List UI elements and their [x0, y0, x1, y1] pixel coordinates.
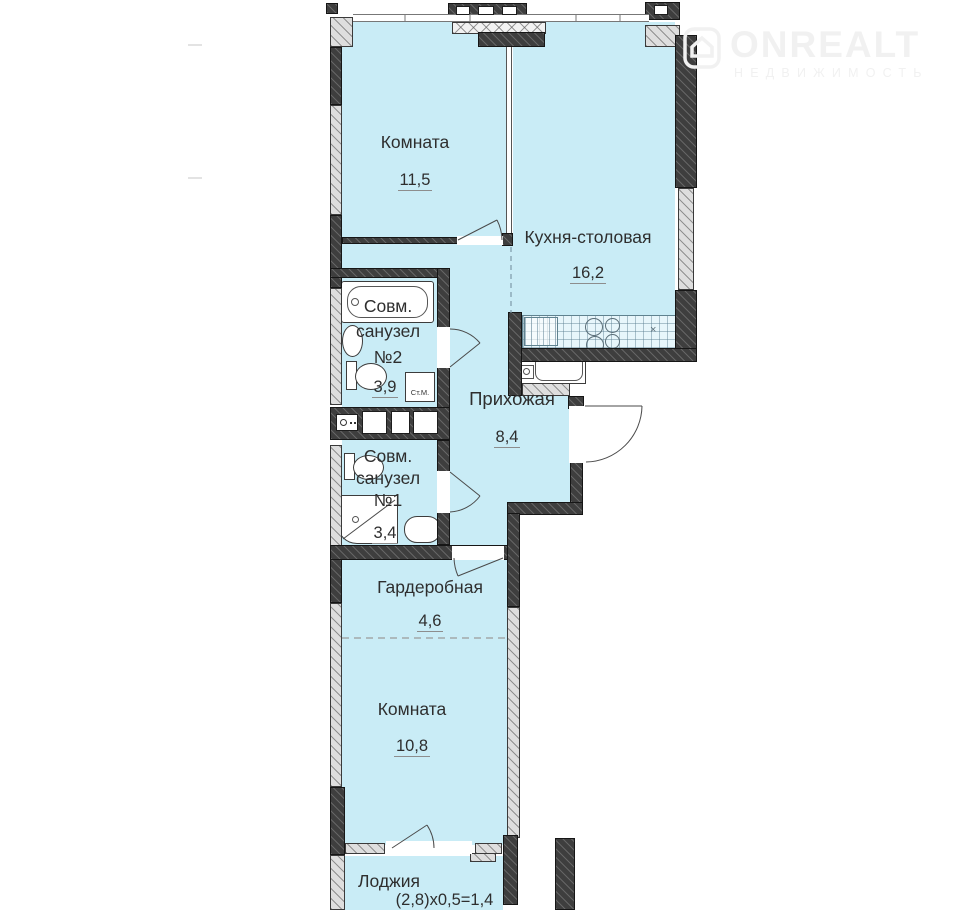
bath2-area: 3,9: [350, 377, 420, 396]
door-arc: [450, 329, 480, 343]
bath1-area: 3,4: [350, 523, 420, 542]
bath2-label-line3: №2: [336, 348, 440, 367]
bath2-label-line1: Совм.: [336, 297, 440, 316]
room1-label: Комната: [330, 133, 500, 152]
hall-area: 8,4: [472, 427, 542, 446]
loggia-area: (2,8)х0,5=1,4: [362, 891, 527, 909]
kitchen-area: 16,2: [498, 263, 678, 282]
room2-area: 10,8: [322, 736, 502, 755]
hall-label: Прихожая: [437, 389, 587, 409]
door-leaf: [450, 472, 480, 496]
bath1-label-line1: Совм.: [336, 447, 440, 466]
bath1-label-line2: санузел: [336, 469, 440, 488]
door-leaf: [458, 558, 503, 576]
door-leaf: [392, 825, 427, 848]
door-leaf: [450, 343, 480, 367]
loggia-label: Лоджия: [343, 872, 435, 891]
door-arc: [450, 496, 480, 512]
door-arc: [427, 825, 434, 848]
door-arc: [586, 406, 642, 462]
bath1-label-line3: №1: [336, 491, 440, 510]
floorplan-canvas: Ст.М. ×: [0, 0, 960, 910]
kitchen-label: Кухня-столовая: [498, 228, 678, 247]
watermark-logo: [682, 26, 722, 75]
room1-area: 11,5: [330, 170, 500, 189]
house-icon: [682, 26, 722, 70]
bath2-label-line2: санузел: [336, 322, 440, 341]
room2-label: Комната: [322, 700, 502, 719]
wardrobe-label: Гардеробная: [340, 578, 520, 597]
watermark-tagline: НЕДВИЖИМОСТЬ: [734, 66, 929, 80]
watermark-brand: ONREALT: [730, 24, 920, 66]
window-ticks: [405, 14, 620, 22]
wardrobe-area: 4,6: [340, 611, 520, 630]
door-arc: [454, 558, 458, 576]
door-leaf: [458, 220, 497, 240]
